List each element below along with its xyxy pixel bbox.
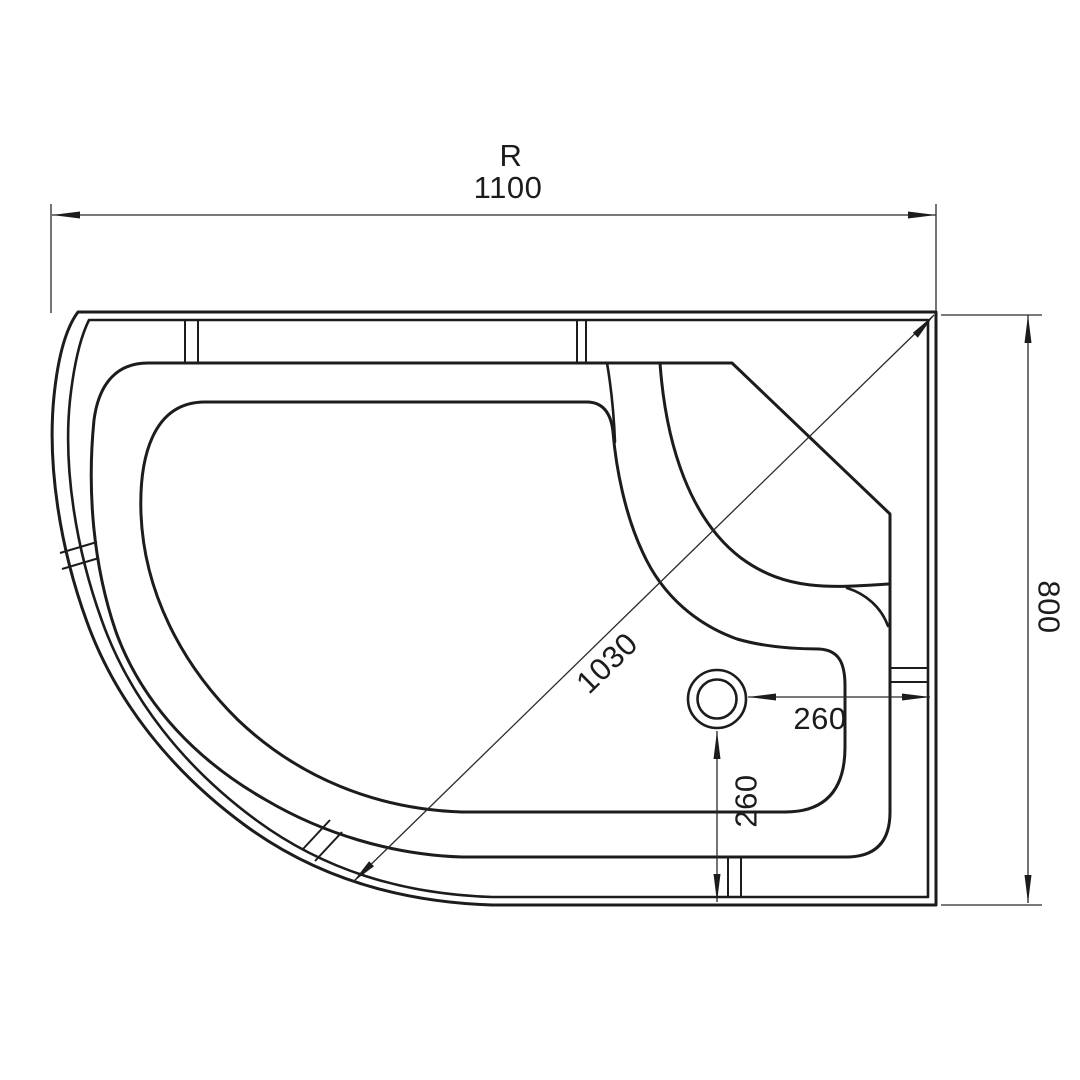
dimension-drain-bottom: 260: [714, 731, 764, 902]
dim-diagonal-arrow-upper: [913, 315, 934, 338]
dim-depth-extension-lines: [941, 315, 1042, 905]
dim-width-arrow-left: [52, 212, 80, 219]
dimension-drain-right: 260: [748, 694, 930, 737]
dimension-depth: 800: [941, 315, 1067, 905]
dim-drain-right-arrow-left: [748, 694, 776, 701]
technical-drawing-canvas: R 1100 800 1030 260: [0, 0, 1080, 1080]
dim-width-arrow-right: [908, 212, 936, 219]
variant-label: R: [500, 138, 523, 173]
dim-drain-right-label: 260: [793, 701, 846, 736]
dim-depth-arrow-top: [1025, 315, 1032, 343]
tick-top-right: [577, 319, 586, 363]
seat-basin-junction-line: [607, 363, 615, 442]
dim-depth-label: 800: [1032, 580, 1067, 633]
tick-right: [890, 668, 927, 682]
tick-bottom: [728, 857, 741, 897]
shower-tray-plan-drawing: R 1100 800 1030 260: [0, 0, 1080, 1080]
seat-front-arc: [660, 363, 888, 586]
dimension-width: R 1100: [51, 138, 936, 313]
dim-width-label: 1100: [474, 170, 543, 205]
drain-circle-inner: [698, 680, 737, 719]
seat-rim-fillet: [847, 588, 888, 626]
tick-top-left: [185, 319, 198, 363]
dim-drain-bottom-arrow-up: [714, 731, 721, 759]
dim-drain-right-arrow-right: [902, 694, 930, 701]
dim-width-extension-lines: [51, 204, 936, 313]
basin-outline: [141, 402, 845, 812]
dim-diagonal-line: [353, 315, 934, 882]
dim-drain-bottom-label: 260: [729, 774, 764, 827]
dim-depth-arrow-bottom: [1025, 875, 1032, 903]
dim-diagonal-label: 1030: [569, 626, 644, 701]
dimension-diagonal: 1030: [353, 315, 934, 882]
